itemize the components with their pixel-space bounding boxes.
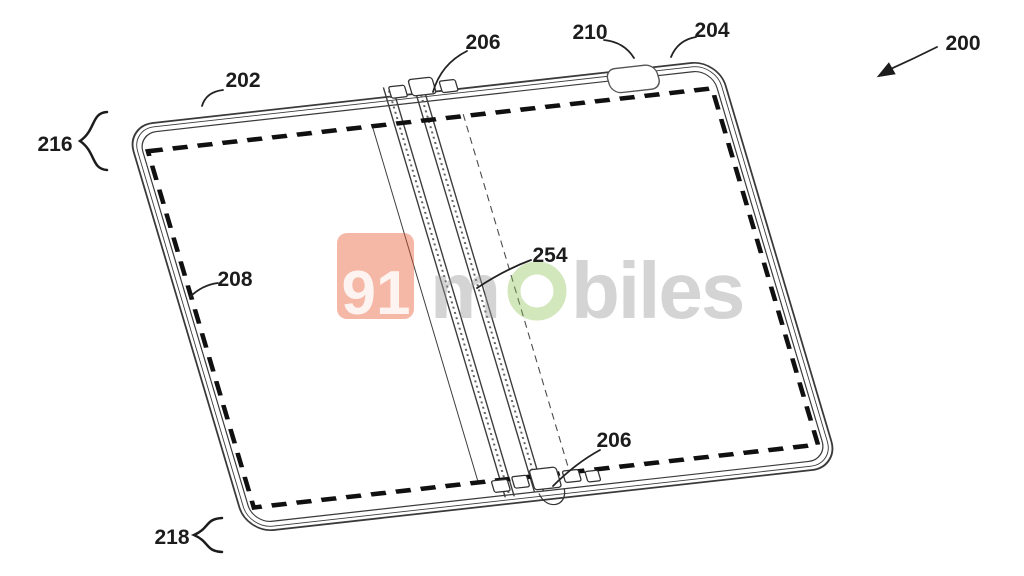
patent-drawing: 91 m biles 200 202 204 210 206 254 (0, 0, 1024, 576)
watermark-text-m: m (430, 246, 501, 335)
leader-204 (671, 37, 696, 57)
camera-cutout (605, 64, 662, 93)
brace-218 (194, 518, 222, 552)
ref-label-218: 218 (154, 526, 189, 549)
leader-210 (604, 40, 634, 58)
arrowhead-200 (877, 62, 896, 77)
brace-216 (80, 112, 107, 170)
ref-label-206-bottom: 206 (596, 429, 631, 452)
ref-label-200: 200 (945, 32, 980, 55)
watermark-badge-text: 91 (342, 259, 411, 328)
ref-label-206-top: 206 (465, 31, 500, 54)
ref-label-208: 208 (217, 268, 252, 291)
ref-label-216: 216 (37, 133, 72, 156)
ref-label-204: 204 (694, 19, 729, 42)
patent-figure-canvas: 91 m biles 200 202 204 210 206 254 (0, 0, 1024, 576)
ref-label-254: 254 (532, 244, 567, 267)
ref-label-202: 202 (225, 69, 260, 92)
leader-202 (202, 90, 223, 106)
watermark-text-biles: biles (571, 246, 743, 335)
ref-label-210: 210 (572, 21, 607, 44)
